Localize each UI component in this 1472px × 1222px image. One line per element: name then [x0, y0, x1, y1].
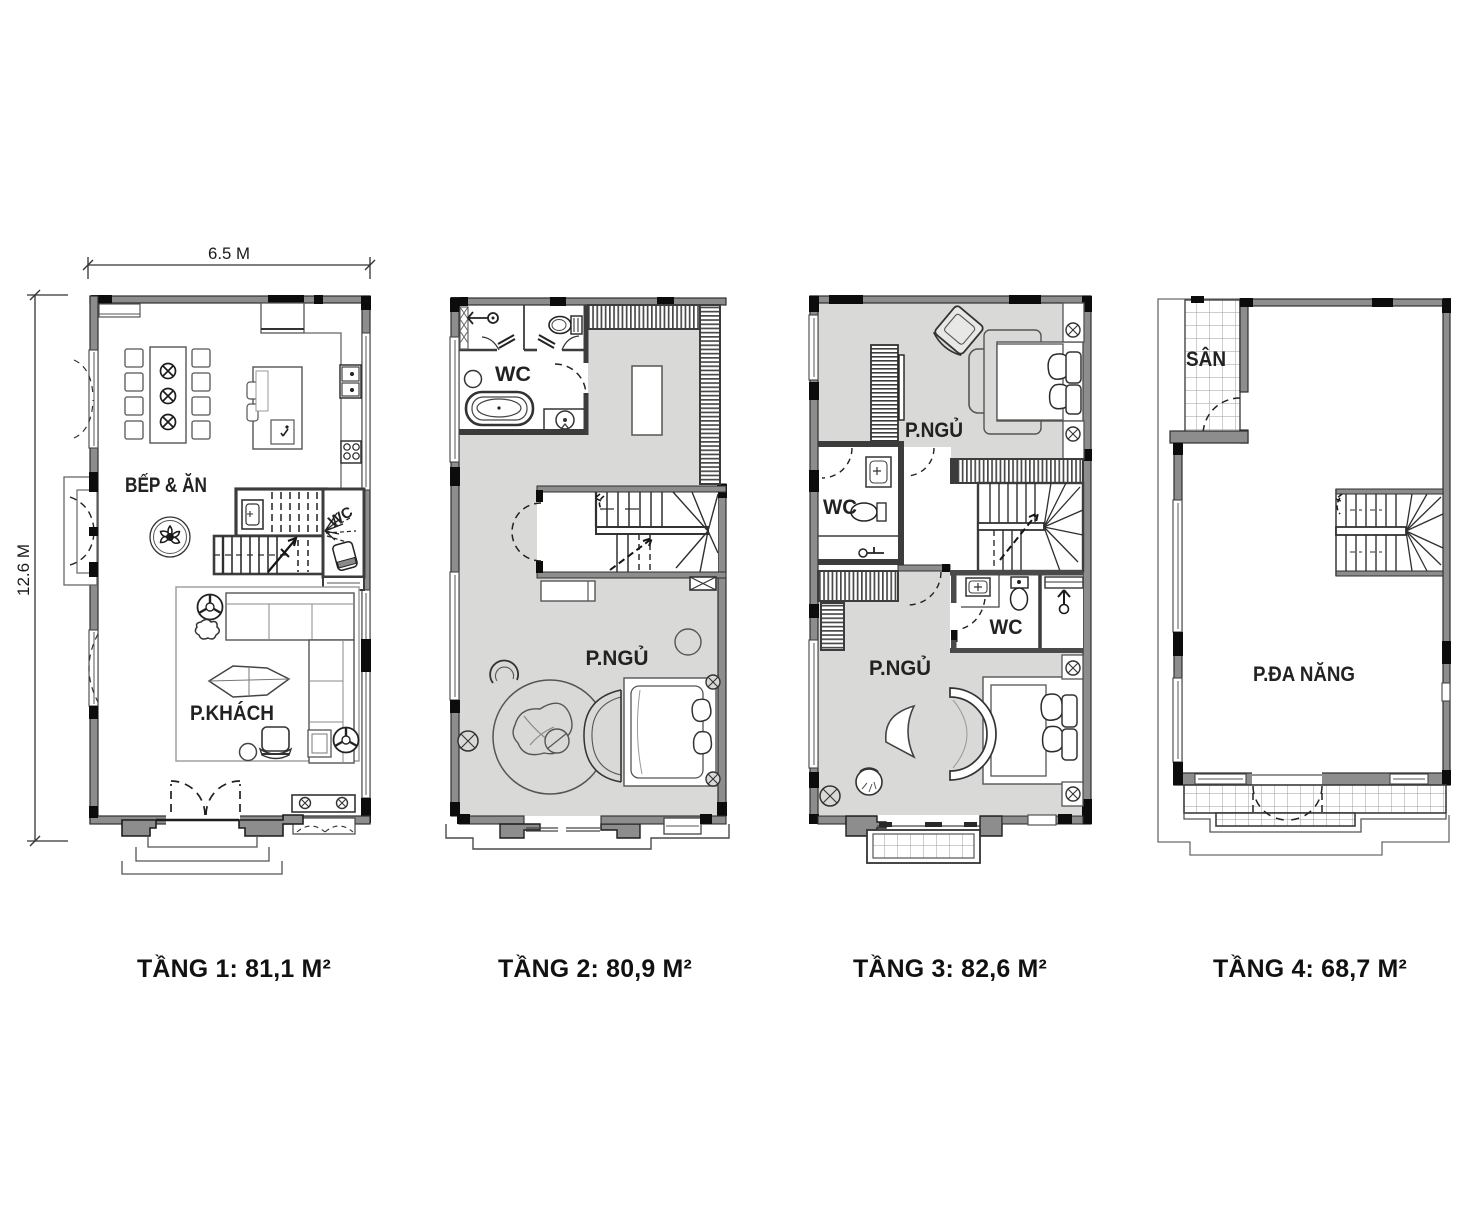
svg-text:P.NGỦ: P.NGỦ	[869, 656, 931, 680]
svg-text:WC: WC	[495, 363, 531, 386]
svg-text:WC: WC	[823, 496, 857, 519]
svg-text:P.NGỦ: P.NGỦ	[905, 418, 963, 442]
svg-text:6.5 M: 6.5 M	[208, 244, 250, 263]
svg-text:SÂN: SÂN	[1186, 347, 1226, 371]
svg-text:TẦNG 2: 80,9 M²: TẦNG 2: 80,9 M²	[498, 954, 692, 983]
svg-text:TẦNG 3: 82,6 M²: TẦNG 3: 82,6 M²	[853, 954, 1047, 983]
svg-text:BẾP & ĂN: BẾP & ĂN	[125, 474, 207, 497]
svg-text:P.ĐA NĂNG: P.ĐA NĂNG	[1253, 663, 1355, 686]
svg-text:WC: WC	[990, 616, 1023, 639]
svg-text:12.6 M: 12.6 M	[14, 544, 33, 596]
svg-text:TẦNG 1: 81,1 M²: TẦNG 1: 81,1 M²	[137, 954, 331, 983]
svg-text:P.NGỦ: P.NGỦ	[586, 646, 649, 670]
svg-text:TẦNG 4: 68,7 M²: TẦNG 4: 68,7 M²	[1213, 954, 1407, 983]
svg-text:P.KHÁCH: P.KHÁCH	[190, 702, 274, 725]
